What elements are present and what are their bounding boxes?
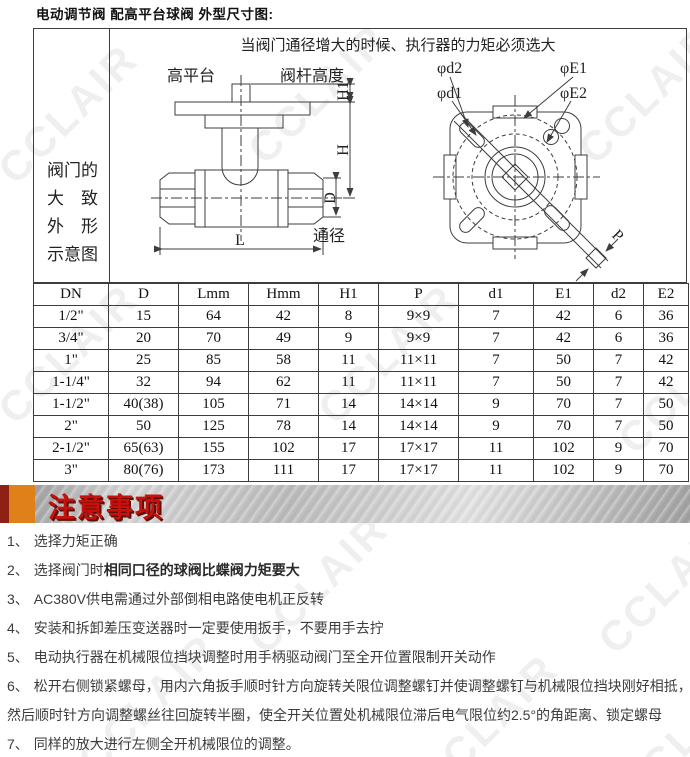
note-text: 松开右侧锁紧螺母，用内六角扳手顺时针方向旋转关限位调整螺钉并使调整螺钉与机械限位… [34, 678, 690, 694]
table-cell: 42 [534, 306, 594, 328]
table-cell: 11 [459, 460, 534, 482]
table-cell: 7 [459, 306, 534, 328]
table-cell: 70 [179, 328, 249, 350]
table-row: 3/4"20704999×9742636 [34, 328, 689, 350]
table-cell: 1/2" [34, 306, 109, 328]
table-cell: 102 [249, 438, 319, 460]
table-cell: 9 [319, 328, 379, 350]
table-header-cell: H1 [319, 284, 379, 306]
table-cell: 7 [594, 372, 644, 394]
table-cell: 11 [459, 438, 534, 460]
banner-orange-block [9, 485, 35, 523]
table-cell: 70 [644, 460, 689, 482]
label-d: D [322, 192, 339, 204]
table-cell: 6 [594, 306, 644, 328]
page: CCLAIRCCLAIRCCLAIRCCLAIRCCLAIRCCLAIRCCLA… [0, 0, 690, 757]
table-cell: 17×17 [379, 460, 459, 482]
note-item: 6、松开右侧锁紧螺母，用内六角扳手顺时针方向旋转关限位调整螺钉并使调整螺钉与机械… [7, 672, 687, 701]
table-cell: 3" [34, 460, 109, 482]
table-cell: 155 [179, 438, 249, 460]
table-cell: 14×14 [379, 394, 459, 416]
page-title: 电动调节阀 配高平台球阀 外型尺寸图: [36, 3, 274, 23]
outline-drawing-box: 阀门的 大 致 外 形 示意图 [33, 28, 687, 283]
table-cell: 125 [179, 416, 249, 438]
note-text: 然后顺时针方向调整螺丝往回旋转半圈，使全开关位置处机械限位滞后电气限位约2.5°… [7, 707, 662, 723]
note-item: 3、AC380V供电需通过外部倒相电路使电机正反转 [7, 585, 687, 614]
note-number: 7、 [7, 736, 29, 752]
table-cell: 65(63) [109, 438, 179, 460]
note-number: 1、 [7, 533, 29, 549]
table-cell: 50 [109, 416, 179, 438]
note-text: AC380V供电需通过外部倒相电路使电机正反转 [34, 591, 324, 607]
dimension-table: DNDLmmHmmH1Pd1E1d2E2 1/2"15644289×974263… [33, 283, 689, 482]
table-cell: 2" [34, 416, 109, 438]
note-text: 选择阀门时 [34, 562, 104, 578]
table-cell: 14 [319, 394, 379, 416]
table-cell: 42 [249, 306, 319, 328]
table-header-cell: D [109, 284, 179, 306]
label-bore: 通径 [313, 227, 345, 245]
table-cell: 70 [534, 416, 594, 438]
note-number: 3、 [7, 591, 29, 607]
table-cell: 7 [459, 372, 534, 394]
label-phi-e2: φE2 [560, 85, 587, 102]
table-cell: 49 [249, 328, 319, 350]
caution-text: 当阀门通径增大的时候、执行器的力矩必须选大 [110, 34, 686, 55]
table-cell: 14×14 [379, 416, 459, 438]
table-cell: 7 [594, 394, 644, 416]
table-header-cell: d1 [459, 284, 534, 306]
side-label-line: 外 形 [47, 213, 109, 241]
note-item-continuation: 然后顺时针方向调整螺丝往回旋转半圈，使全开关位置处机械限位滞后电气限位约2.5°… [7, 701, 687, 730]
table-cell: 42 [644, 350, 689, 372]
label-h1: H1 [335, 81, 352, 101]
table-row: 2"50125781414×14970750 [34, 416, 689, 438]
table-cell: 1" [34, 350, 109, 372]
drawing-side-label: 阀门的 大 致 外 形 示意图 [34, 29, 110, 282]
table-cell: 11×11 [379, 372, 459, 394]
side-label-line: 大 致 [47, 185, 109, 213]
table-cell: 7 [594, 350, 644, 372]
table-cell: 2-1/2" [34, 438, 109, 460]
table-cell: 20 [109, 328, 179, 350]
table-cell: 105 [179, 394, 249, 416]
table-cell: 17×17 [379, 438, 459, 460]
table-cell: 9×9 [379, 306, 459, 328]
notes-banner-title: 注意事项 [48, 486, 164, 525]
table-cell: 70 [534, 394, 594, 416]
table-cell: 70 [644, 438, 689, 460]
top-view [433, 77, 618, 281]
table-cell: 62 [249, 372, 319, 394]
table-cell: 85 [179, 350, 249, 372]
table-cell: 50 [644, 416, 689, 438]
table-cell: 102 [534, 438, 594, 460]
note-number: 2、 [7, 562, 29, 578]
banner-maroon-strip [0, 485, 9, 523]
note-number: 6、 [7, 678, 29, 694]
table-cell: 1-1/2" [34, 394, 109, 416]
table-cell: 64 [179, 306, 249, 328]
table-header-cell: DN [34, 284, 109, 306]
table-header-cell: E1 [534, 284, 594, 306]
table-cell: 36 [644, 306, 689, 328]
note-item: 5、电动执行器在机械限位挡块调整时用手柄驱动阀门至全开位置限制开关动作 [7, 643, 687, 672]
notes-banner: 注意事项 [0, 485, 690, 523]
table-cell: 6 [594, 328, 644, 350]
side-label-line: 阀门的 [47, 157, 109, 185]
drawing-area: 高平台 阀杆高度 H1 H D 通径 L [110, 29, 686, 282]
table-cell: 14 [319, 416, 379, 438]
label-high-platform: 高平台 [167, 67, 215, 85]
table-cell: 94 [179, 372, 249, 394]
note-text-bold: 相同口径的球阀比蝶阀力矩要大 [104, 562, 300, 578]
table-row: 1/2"15644289×9742636 [34, 306, 689, 328]
note-text: 选择力矩正确 [34, 533, 118, 549]
valve-dimension-drawing: 高平台 阀杆高度 H1 H D 通径 L [110, 29, 687, 282]
table-cell: 102 [534, 460, 594, 482]
table-header-cell: E2 [644, 284, 689, 306]
table-header-cell: Hmm [249, 284, 319, 306]
note-number: 4、 [7, 620, 29, 636]
table-cell: 7 [459, 328, 534, 350]
note-item: 1、选择力矩正确 [7, 527, 687, 556]
note-number: 5、 [7, 649, 29, 665]
table-cell: 9 [594, 438, 644, 460]
table-cell: 17 [319, 460, 379, 482]
table-cell: 32 [109, 372, 179, 394]
table-row: 1-1/2"40(38)105711414×14970750 [34, 394, 689, 416]
table-cell: 25 [109, 350, 179, 372]
table-cell: 9 [594, 460, 644, 482]
table-cell: 7 [594, 416, 644, 438]
table-row: 1"2585581111×11750742 [34, 350, 689, 372]
note-item: 2、选择阀门时相同口径的球阀比蝶阀力矩要大 [7, 556, 687, 585]
label-phi-d2: φd2 [437, 60, 462, 77]
label-phi-d1: φd1 [437, 85, 462, 102]
table-cell: 9×9 [379, 328, 459, 350]
dimension-table-body: 1/2"15644289×97426363/4"20704999×9742636… [34, 306, 689, 482]
note-text: 安装和拆卸差压变送器时一定要使用扳手，不要用手去拧 [34, 620, 384, 636]
table-cell: 11 [319, 372, 379, 394]
side-label-line: 示意图 [47, 241, 109, 269]
note-item: 4、安装和拆卸差压变送器时一定要使用扳手，不要用手去拧 [7, 614, 687, 643]
table-cell: 7 [459, 350, 534, 372]
label-phi-e1: φE1 [560, 60, 587, 77]
table-cell: 15 [109, 306, 179, 328]
table-cell: 3/4" [34, 328, 109, 350]
table-cell: 42 [534, 328, 594, 350]
table-header-cell: d2 [594, 284, 644, 306]
label-p: P [608, 227, 626, 245]
table-row: 3"80(76)1731111717×1711102970 [34, 460, 689, 482]
table-cell: 11 [319, 350, 379, 372]
table-cell: 40(38) [109, 394, 179, 416]
table-cell: 8 [319, 306, 379, 328]
table-cell: 50 [534, 372, 594, 394]
table-row: 2-1/2"65(63)1551021717×1711102970 [34, 438, 689, 460]
table-cell: 9 [459, 416, 534, 438]
table-cell: 11×11 [379, 350, 459, 372]
table-cell: 50 [534, 350, 594, 372]
table-cell: 173 [179, 460, 249, 482]
table-cell: 111 [249, 460, 319, 482]
table-cell: 80(76) [109, 460, 179, 482]
table-row: 1-1/4"3294621111×11750742 [34, 372, 689, 394]
table-cell: 42 [644, 372, 689, 394]
table-cell: 36 [644, 328, 689, 350]
note-text: 同样的放大进行左侧全开机械限位的调整。 [34, 736, 300, 752]
table-header-row: DNDLmmHmmH1Pd1E1d2E2 [34, 284, 689, 306]
table-header-cell: P [379, 284, 459, 306]
table-cell: 9 [459, 394, 534, 416]
table-cell: 58 [249, 350, 319, 372]
label-h: H [335, 144, 352, 156]
table-cell: 17 [319, 438, 379, 460]
table-cell: 78 [249, 416, 319, 438]
notes-list: 1、选择力矩正确 2、选择阀门时相同口径的球阀比蝶阀力矩要大 3、AC380V供… [7, 527, 687, 757]
table-cell: 1-1/4" [34, 372, 109, 394]
table-cell: 50 [644, 394, 689, 416]
table-header-cell: Lmm [179, 284, 249, 306]
label-l: L [235, 232, 245, 249]
table-cell: 71 [249, 394, 319, 416]
note-item: 7、同样的放大进行左侧全开机械限位的调整。 [7, 730, 687, 757]
note-text: 电动执行器在机械限位挡块调整时用手柄驱动阀门至全开位置限制开关动作 [34, 649, 496, 665]
